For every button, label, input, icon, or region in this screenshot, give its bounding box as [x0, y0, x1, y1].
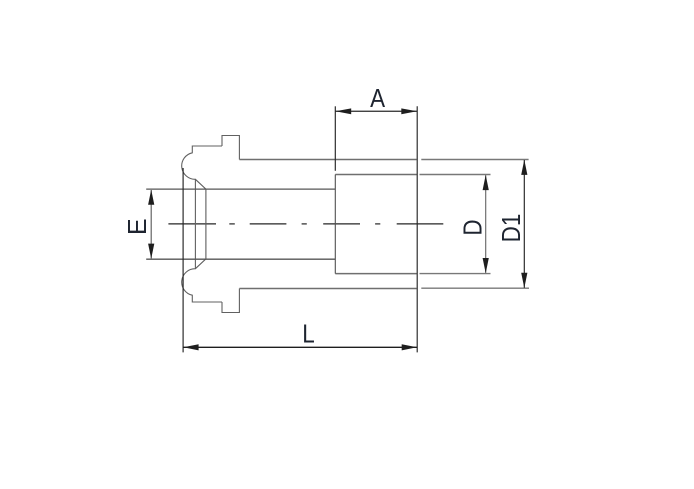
svg-text:A: A — [370, 85, 385, 114]
svg-text:D: D — [459, 219, 488, 235]
svg-text:L: L — [302, 320, 314, 349]
svg-text:E: E — [124, 218, 152, 234]
svg-text:D1: D1 — [498, 214, 527, 243]
